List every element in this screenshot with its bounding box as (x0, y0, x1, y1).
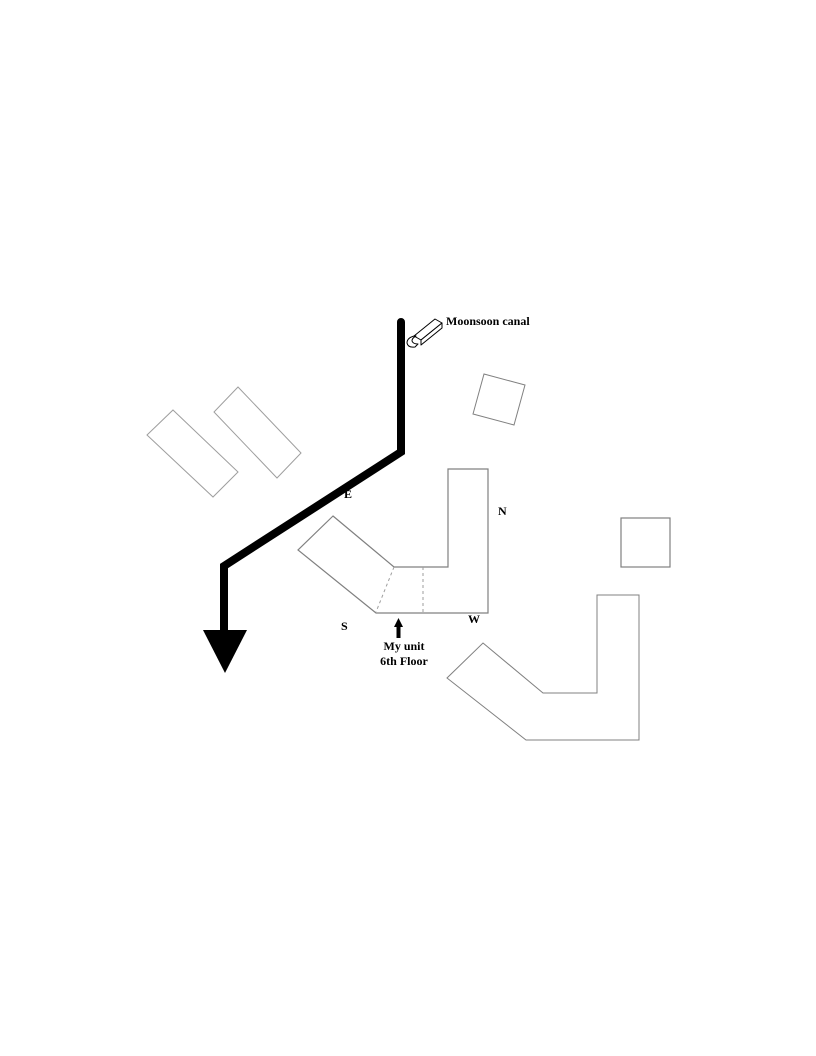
compass-north-label: N (498, 504, 507, 518)
canal-flow-3d-arrow-icon (407, 319, 442, 347)
rotated-square-building (473, 374, 525, 425)
sixth-floor-label: 6th Floor (380, 654, 428, 668)
compass-west-label: W (468, 612, 480, 626)
my-unit-building (298, 469, 488, 613)
site-sketch-drawing (0, 0, 816, 1056)
compass-east-label: E (344, 487, 352, 501)
my-unit-label: My unit (383, 639, 424, 653)
small-square-building (621, 518, 670, 567)
unit-pointer-shaft (397, 626, 401, 638)
compass-south-label: S (341, 619, 348, 633)
unit-pointer-arrow-icon (394, 618, 403, 638)
unit-pointer-head (394, 618, 403, 627)
site-sketch-page: Moonsoon canal E N W S My unit 6th Floor (0, 0, 816, 1056)
canal-direction-arrowhead-icon (203, 630, 247, 673)
canal-label: Moonsoon canal (446, 314, 530, 328)
